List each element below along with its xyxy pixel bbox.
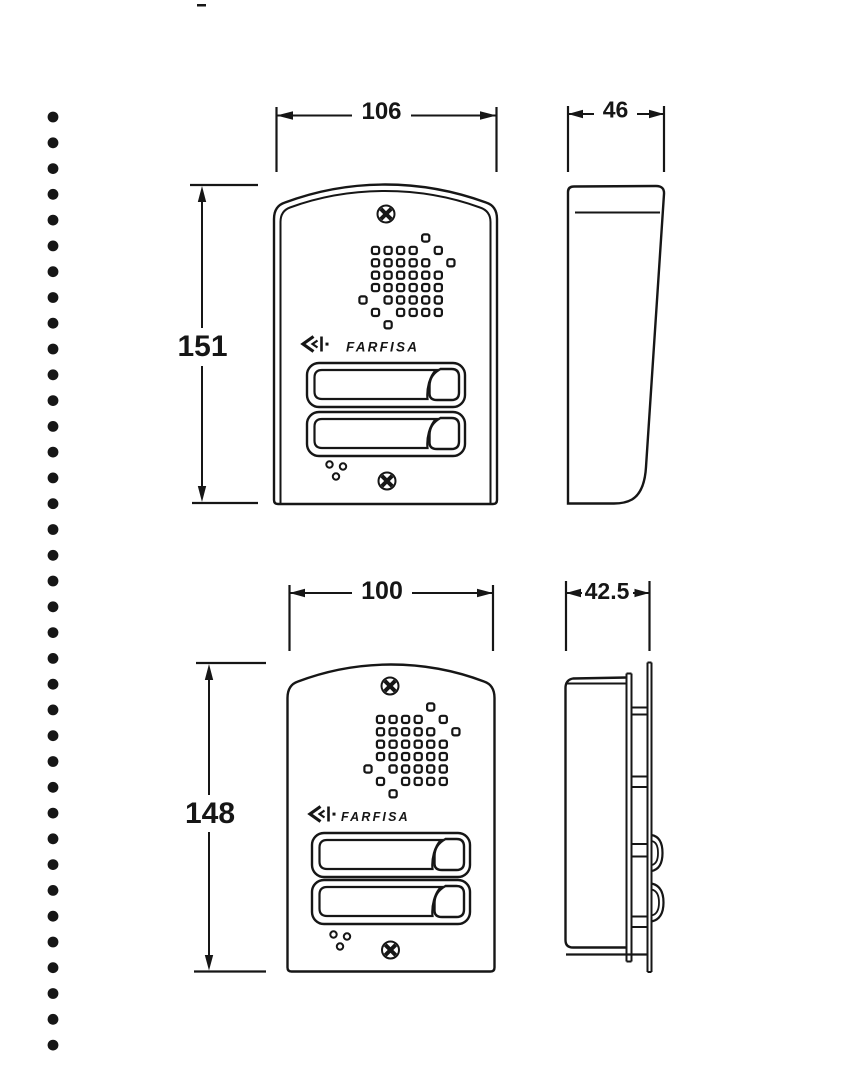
dimension-depth-flush: 42.5 <box>566 578 650 651</box>
screw-top-icon <box>378 206 395 223</box>
screw-bottom-icon <box>379 473 396 490</box>
arrow-left-icon <box>568 110 583 118</box>
side-view-surface-mount <box>568 186 664 504</box>
arrow-up-icon <box>198 186 206 202</box>
call-button-2 <box>312 880 470 924</box>
brand-logo: FARFISA <box>303 337 419 355</box>
technical-drawing-page: FARFISA 106 151 46 <box>0 0 852 1066</box>
front-view-surface-mount: FARFISA <box>274 185 497 505</box>
drain-holes <box>330 931 350 949</box>
speaker-grille <box>359 234 454 328</box>
arrow-down-icon <box>198 486 206 502</box>
arrow-left-icon <box>277 111 294 120</box>
brand-logo: FARFISA <box>310 807 410 825</box>
screw-top-icon <box>382 678 399 695</box>
width-label-flush: 100 <box>361 577 403 605</box>
side-view-flush-mount <box>566 663 664 973</box>
scan-mark <box>197 4 206 7</box>
front-view-flush-mount: FARFISA <box>288 665 495 972</box>
arrow-left-icon <box>566 589 581 597</box>
dimension-width-flush: 100 <box>290 577 494 651</box>
height-label-flush: 148 <box>185 797 235 830</box>
depth-label-flush: 42.5 <box>585 578 630 604</box>
arrow-down-icon <box>205 955 213 971</box>
arrow-right-icon <box>480 111 497 120</box>
back-box-outline <box>566 678 628 948</box>
dimension-height-surface: 151 <box>177 185 258 503</box>
arrow-up-icon <box>205 664 213 680</box>
screw-bottom-icon <box>382 942 399 959</box>
arrow-right-icon <box>649 110 664 118</box>
speaker-logo-icon <box>303 337 329 352</box>
call-button-1 <box>307 363 465 407</box>
brand-logo-text: FARFISA <box>346 340 419 355</box>
dimension-width-surface: 106 <box>277 98 497 172</box>
call-button-2 <box>307 412 465 456</box>
brand-logo-text: FARFISA <box>341 810 410 824</box>
speaker-logo-icon <box>310 807 336 822</box>
depth-label-surface: 46 <box>603 97 629 123</box>
mounting-frame-edge <box>627 674 632 962</box>
call-button-1 <box>312 833 470 877</box>
front-plate-edge <box>648 663 652 973</box>
cross-bars <box>632 708 648 928</box>
dimension-depth-surface: 46 <box>568 97 664 173</box>
dimension-height-flush: 148 <box>185 663 266 972</box>
arrow-right-icon <box>635 589 650 597</box>
intercom-dimension-diagram: FARFISA 106 151 46 <box>0 0 852 1066</box>
arrow-right-icon <box>477 589 493 597</box>
side-button-bumps <box>652 835 664 922</box>
height-label-surface: 151 <box>177 330 227 363</box>
binding-dots <box>48 112 59 1051</box>
visor-outline <box>568 186 664 504</box>
width-label-surface: 106 <box>361 98 401 125</box>
arrow-left-icon <box>290 589 306 597</box>
drain-holes <box>326 461 346 479</box>
speaker-grille <box>364 703 459 797</box>
